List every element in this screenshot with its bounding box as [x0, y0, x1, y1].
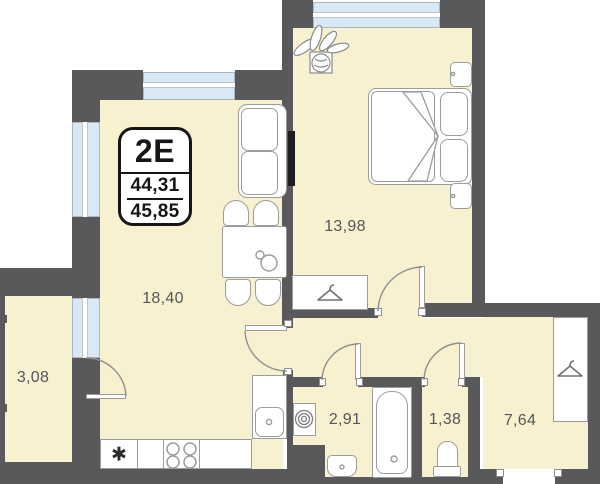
entrance-jamb [496, 469, 504, 477]
bath-door-gap [323, 377, 358, 388]
balcony-tick [0, 315, 7, 323]
dining-chair [255, 279, 281, 306]
fridge-icon: ✱ [111, 444, 127, 467]
nightstand [450, 62, 472, 87]
bedroom-door-gap [378, 308, 422, 318]
door-jamb [319, 378, 326, 386]
apartment-badge: 2E 44,31 45,85 [118, 127, 192, 226]
door-jamb [284, 368, 292, 375]
wc-door-gap [425, 377, 462, 388]
room-area-bathroom: 2,91 [329, 411, 361, 429]
bedroom-door-leaf [419, 266, 425, 308]
wall-segment [468, 377, 480, 469]
apartment-type-label: 2E [135, 130, 175, 172]
room-area-bedroom: 13,98 [324, 218, 366, 236]
kitchen-sink [255, 407, 284, 437]
balcony-door-leaf [86, 394, 126, 399]
dining-table [222, 226, 287, 278]
window-frame [82, 122, 88, 217]
dining-chair [225, 279, 251, 306]
window-frame [143, 82, 235, 88]
wall-segment [472, 0, 485, 317]
door-jamb [418, 308, 426, 316]
toilet-bowl [437, 441, 458, 469]
wall-segment [588, 317, 600, 484]
wall-segment [0, 268, 100, 296]
tv [288, 131, 295, 186]
stove [163, 439, 200, 469]
room-area-balcony: 3,08 [17, 369, 49, 387]
badge-area-total: 45,85 [130, 200, 179, 224]
balcony-tick [0, 404, 7, 412]
window-frame [82, 298, 88, 358]
hall-wardrobe [553, 317, 588, 422]
washing-machine [293, 403, 316, 436]
badge-area-living: 44,31 [127, 174, 182, 200]
pillow [440, 92, 468, 136]
living-door-gap [283, 328, 293, 371]
room-area-living: 18,40 [142, 290, 184, 308]
sofa-cushion [241, 108, 278, 151]
entrance-opening [503, 469, 555, 484]
wall-segment [72, 358, 100, 469]
door-jamb [458, 378, 465, 386]
window-frame [313, 12, 440, 18]
floor-plan: ✱ [0, 0, 600, 484]
pillow [440, 139, 468, 182]
room-area-hall: 7,64 [504, 412, 536, 430]
entrance-jamb [554, 469, 562, 477]
wall-segment [287, 477, 468, 484]
dining-chair [223, 200, 249, 226]
door-jamb [374, 308, 382, 316]
wall-segment [422, 303, 483, 317]
dining-chair [253, 200, 279, 226]
toilet-tank [433, 466, 461, 477]
door-jamb [356, 378, 363, 386]
wall-segment [287, 377, 323, 387]
wall-segment [72, 100, 100, 122]
wall-segment [0, 462, 72, 484]
wall-segment [282, 0, 313, 28]
wall-segment [412, 377, 422, 484]
living-door-leaf [245, 325, 287, 331]
corridor-floor [293, 318, 483, 377]
door-jamb [421, 378, 428, 386]
wall-segment [72, 70, 143, 100]
bedroom-wardrobe [292, 275, 368, 310]
wall-segment [483, 303, 600, 317]
door-jamb [284, 320, 292, 327]
blanket [371, 91, 435, 182]
wall-segment [72, 469, 287, 484]
wc-door-leaf [459, 343, 465, 380]
nightstand [450, 183, 472, 209]
bathroom-sink [327, 455, 357, 477]
bathroom-door-leaf [355, 343, 361, 380]
bathtub-basin [376, 391, 408, 474]
room-area-wc: 1,38 [429, 411, 461, 429]
sofa-cushion [241, 151, 278, 195]
